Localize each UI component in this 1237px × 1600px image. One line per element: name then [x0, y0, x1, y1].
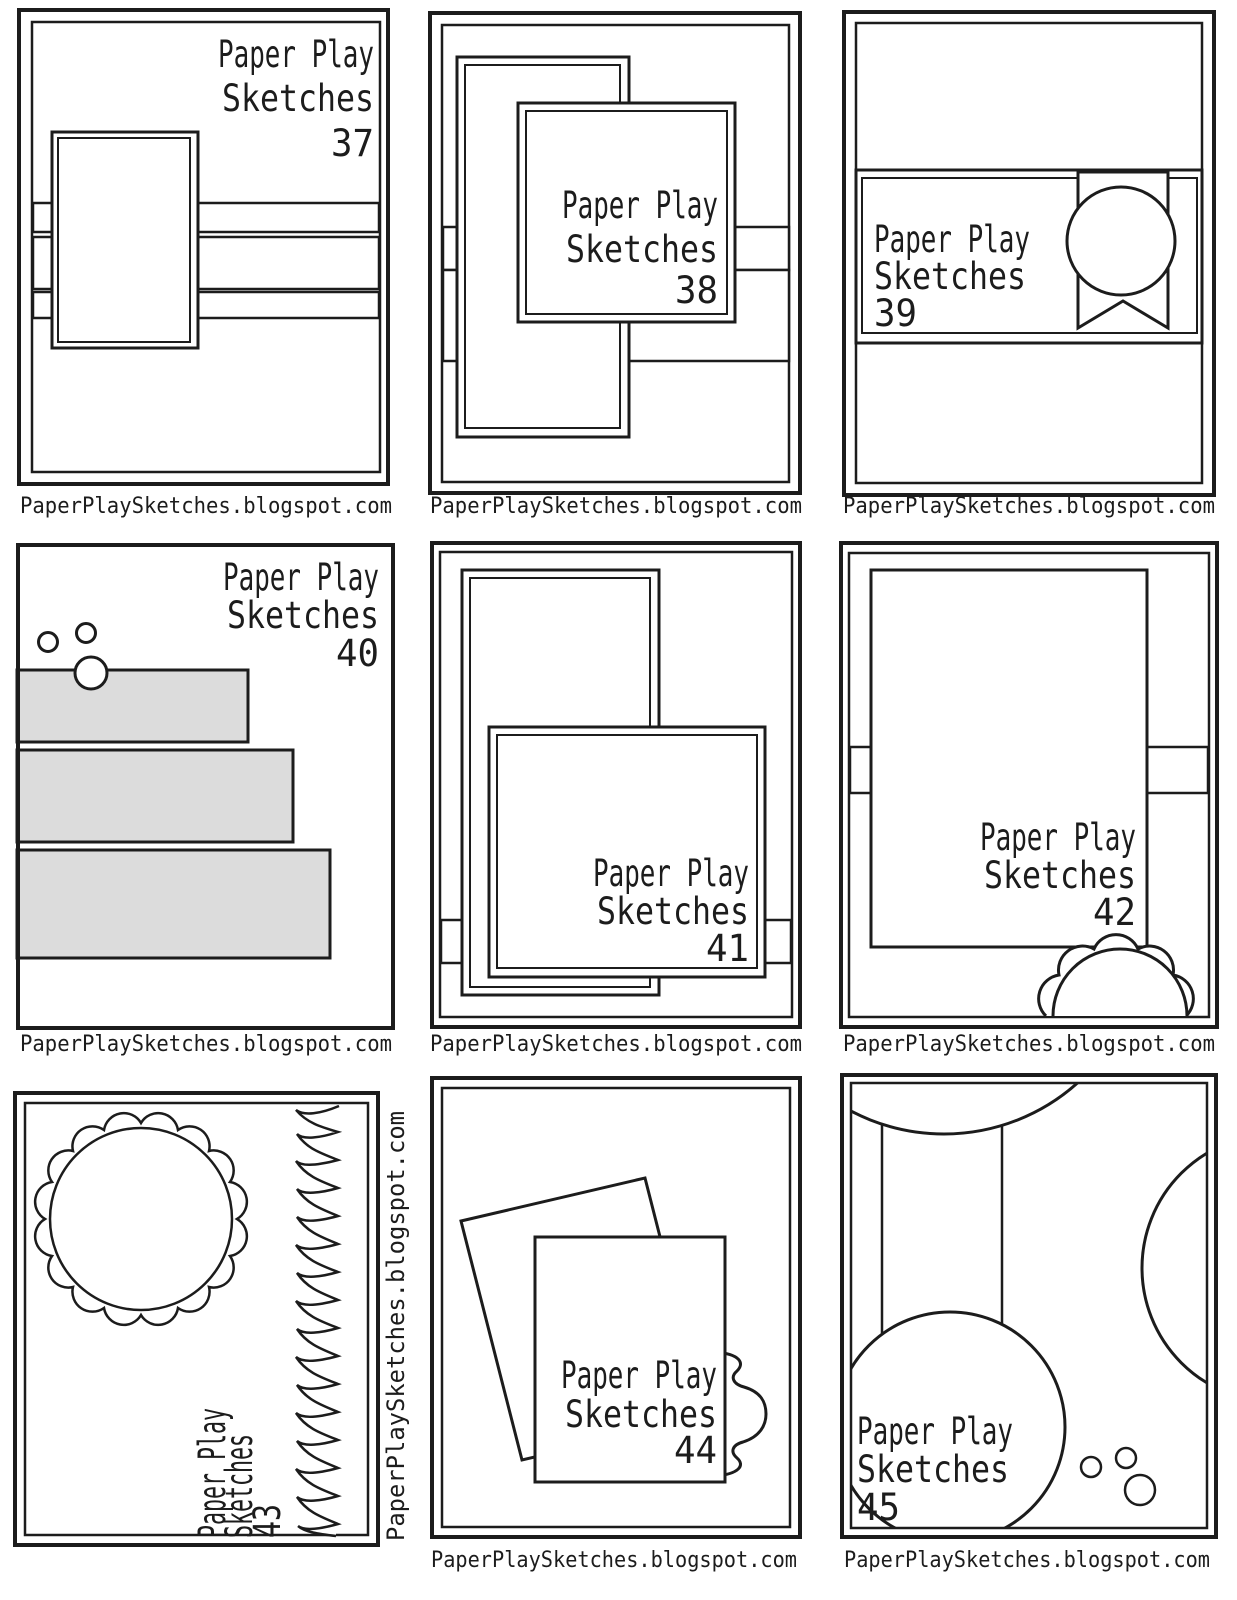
sketch-number: 42: [1093, 891, 1136, 934]
caption-text: PaperPlaySketches.blogspot.com: [430, 1032, 802, 1057]
dot-circle-2: [1116, 1448, 1136, 1468]
sketch-38-panel: Paper Play Sketches 38 PaperPlaySketches…: [412, 0, 824, 530]
title-line-2: Sketches: [566, 228, 718, 271]
accent-circle-3: [75, 657, 107, 689]
sketch-number: 39: [874, 292, 917, 335]
sketch-43-panel: Paper Play Sketches 43 PaperPlaySketches…: [0, 1060, 412, 1600]
sketch-number: 38: [675, 269, 718, 312]
title-line-1: Paper Play: [562, 184, 718, 227]
badge-circle: [1067, 187, 1175, 295]
dot-circle-3: [1125, 1475, 1155, 1505]
sketch-41-panel: Paper Play Sketches 41 PaperPlaySketches…: [412, 530, 824, 1060]
title-line-1: Paper Play: [857, 1410, 1013, 1453]
title-line-1: Paper Play: [223, 556, 379, 599]
accent-circle-2: [77, 624, 96, 643]
caption-text: PaperPlaySketches.blogspot.com: [431, 1548, 797, 1573]
gray-bar-1: [17, 670, 248, 742]
sketch-37-panel: Paper Play Sketches 37 PaperPlaySketches…: [0, 0, 412, 530]
caption-text: PaperPlaySketches.blogspot.com: [20, 494, 392, 519]
top-circle: [824, 1060, 1144, 1134]
sketch-number: 43: [246, 1504, 289, 1538]
sketch-sheet: Paper Play Sketches 37 PaperPlaySketches…: [0, 0, 1237, 1600]
caption-text: PaperPlaySketches.blogspot.com: [844, 1548, 1210, 1573]
sketch-number: 37: [331, 122, 374, 165]
sketch-number: 45: [857, 1486, 900, 1529]
sketch-number: 40: [336, 632, 379, 675]
accent-circle-1: [39, 633, 58, 652]
caption-text: PaperPlaySketches.blogspot.com: [843, 494, 1215, 519]
title-line-1: Paper Play: [593, 852, 749, 895]
title-line-1: Paper Play: [218, 33, 374, 76]
scallop-circle-outer: [35, 1113, 247, 1325]
sketch-44-panel: Paper Play Sketches 44 PaperPlaySketches…: [412, 1060, 824, 1600]
gray-bar-2: [17, 750, 293, 842]
title-line-2: Sketches: [857, 1448, 1009, 1491]
grass-border: [296, 1106, 339, 1536]
sketch-number: 44: [674, 1429, 717, 1472]
sketch-39-panel: Paper Play Sketches 39 PaperPlaySketches…: [824, 0, 1237, 530]
dot-circle-1: [1081, 1457, 1101, 1477]
sketch-42-panel: Paper Play Sketches 42 PaperPlaySketches…: [824, 530, 1237, 1060]
title-line-1: Paper Play: [561, 1354, 717, 1397]
sketch-45-panel: Paper Play Sketches 45 PaperPlaySketches…: [824, 1060, 1237, 1600]
gray-bar-3: [17, 850, 330, 958]
title-line-2: Sketches: [227, 594, 379, 637]
title-line-1: Paper Play: [980, 816, 1136, 859]
caption-text: PaperPlaySketches.blogspot.com: [20, 1032, 392, 1057]
title-line-2: Sketches: [222, 77, 374, 120]
caption-text: PaperPlaySketches.blogspot.com: [430, 494, 802, 519]
photo-mat: [52, 132, 198, 348]
sketch-40-panel: Paper Play Sketches 40 PaperPlaySketches…: [0, 530, 412, 1060]
caption-text: PaperPlaySketches.blogspot.com: [843, 1032, 1215, 1057]
right-circle: [1142, 1134, 1237, 1402]
caption-text: PaperPlaySketches.blogspot.com: [382, 1111, 410, 1541]
sketch-number: 41: [706, 927, 749, 970]
